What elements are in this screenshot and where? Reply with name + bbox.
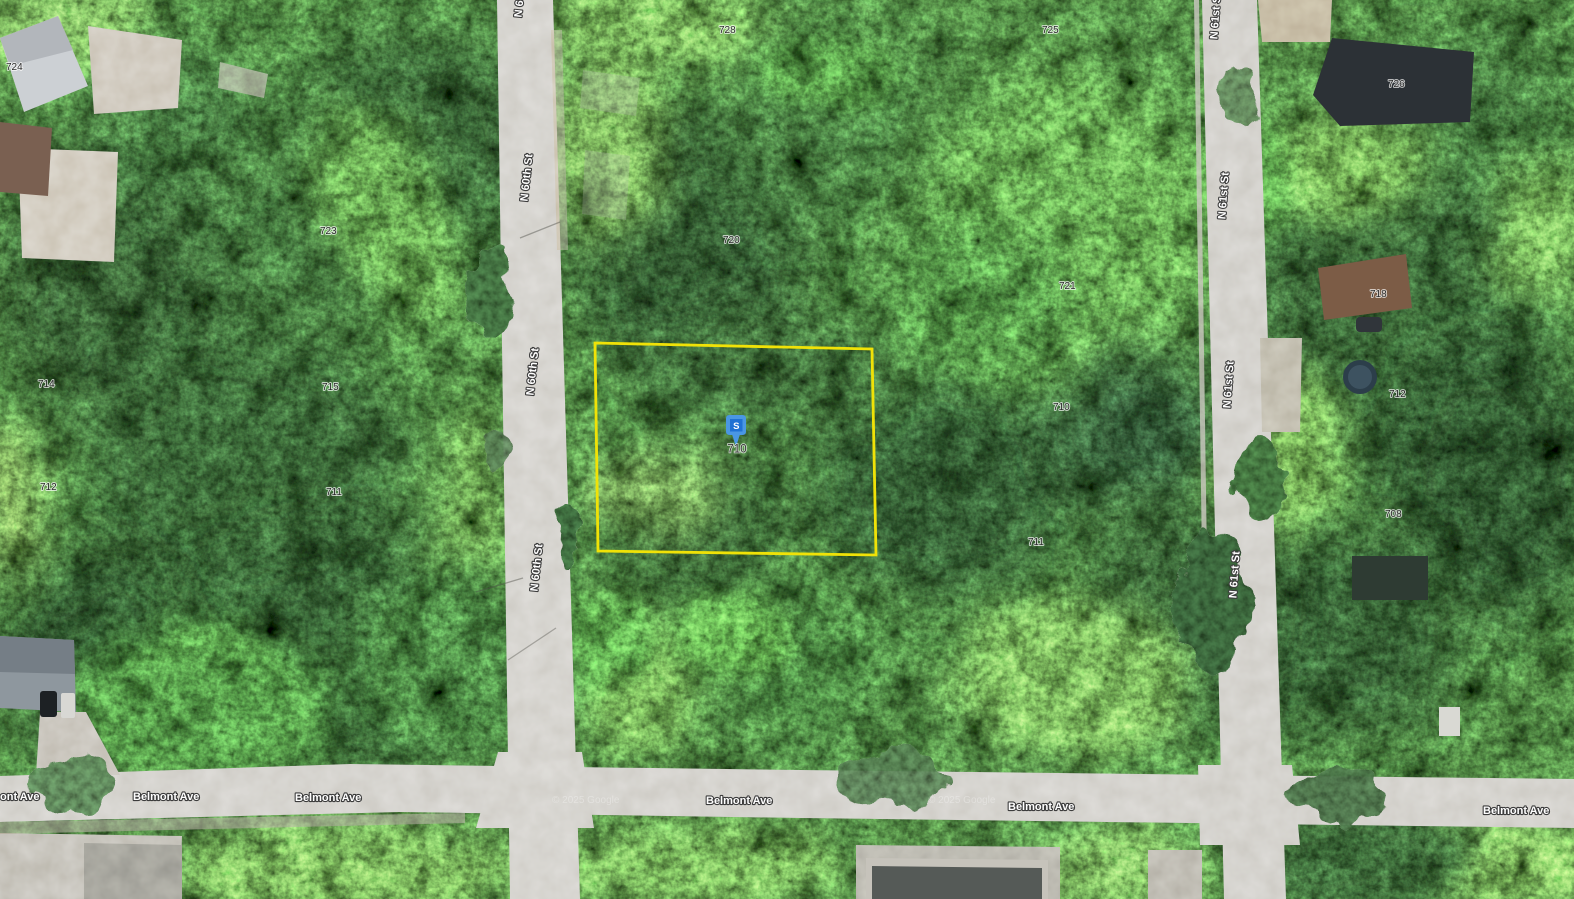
svg-text:708: 708 — [1385, 509, 1402, 520]
svg-text:725: 725 — [1042, 25, 1059, 36]
svg-text:712: 712 — [40, 482, 57, 493]
svg-text:Belmont Ave: Belmont Ave — [295, 792, 361, 804]
svg-text:723: 723 — [320, 226, 337, 237]
svg-text:Belmont Ave: Belmont Ave — [1483, 805, 1549, 817]
svg-text:710: 710 — [727, 444, 746, 456]
svg-text:726: 726 — [1388, 79, 1405, 90]
svg-text:© 2025 Google: © 2025 Google — [928, 795, 996, 806]
svg-text:ont Ave: ont Ave — [0, 791, 40, 803]
svg-text:712: 712 — [1389, 389, 1406, 400]
svg-text:721: 721 — [1059, 281, 1076, 292]
svg-text:728: 728 — [719, 25, 736, 36]
svg-text:718: 718 — [1370, 289, 1387, 300]
svg-text:715: 715 — [322, 382, 339, 393]
svg-text:Belmont Ave: Belmont Ave — [1008, 801, 1074, 813]
svg-text:Belmont Ave: Belmont Ave — [706, 795, 772, 807]
svg-text:711: 711 — [326, 487, 342, 498]
svg-text:724: 724 — [6, 62, 23, 73]
svg-text:720: 720 — [723, 235, 740, 246]
svg-text:S: S — [733, 421, 739, 432]
svg-text:714: 714 — [38, 379, 55, 390]
svg-text:710: 710 — [1053, 402, 1070, 413]
svg-text:711: 711 — [1028, 537, 1044, 548]
svg-text:Belmont Ave: Belmont Ave — [133, 791, 199, 803]
svg-text:© 2025 Google: © 2025 Google — [552, 795, 620, 806]
